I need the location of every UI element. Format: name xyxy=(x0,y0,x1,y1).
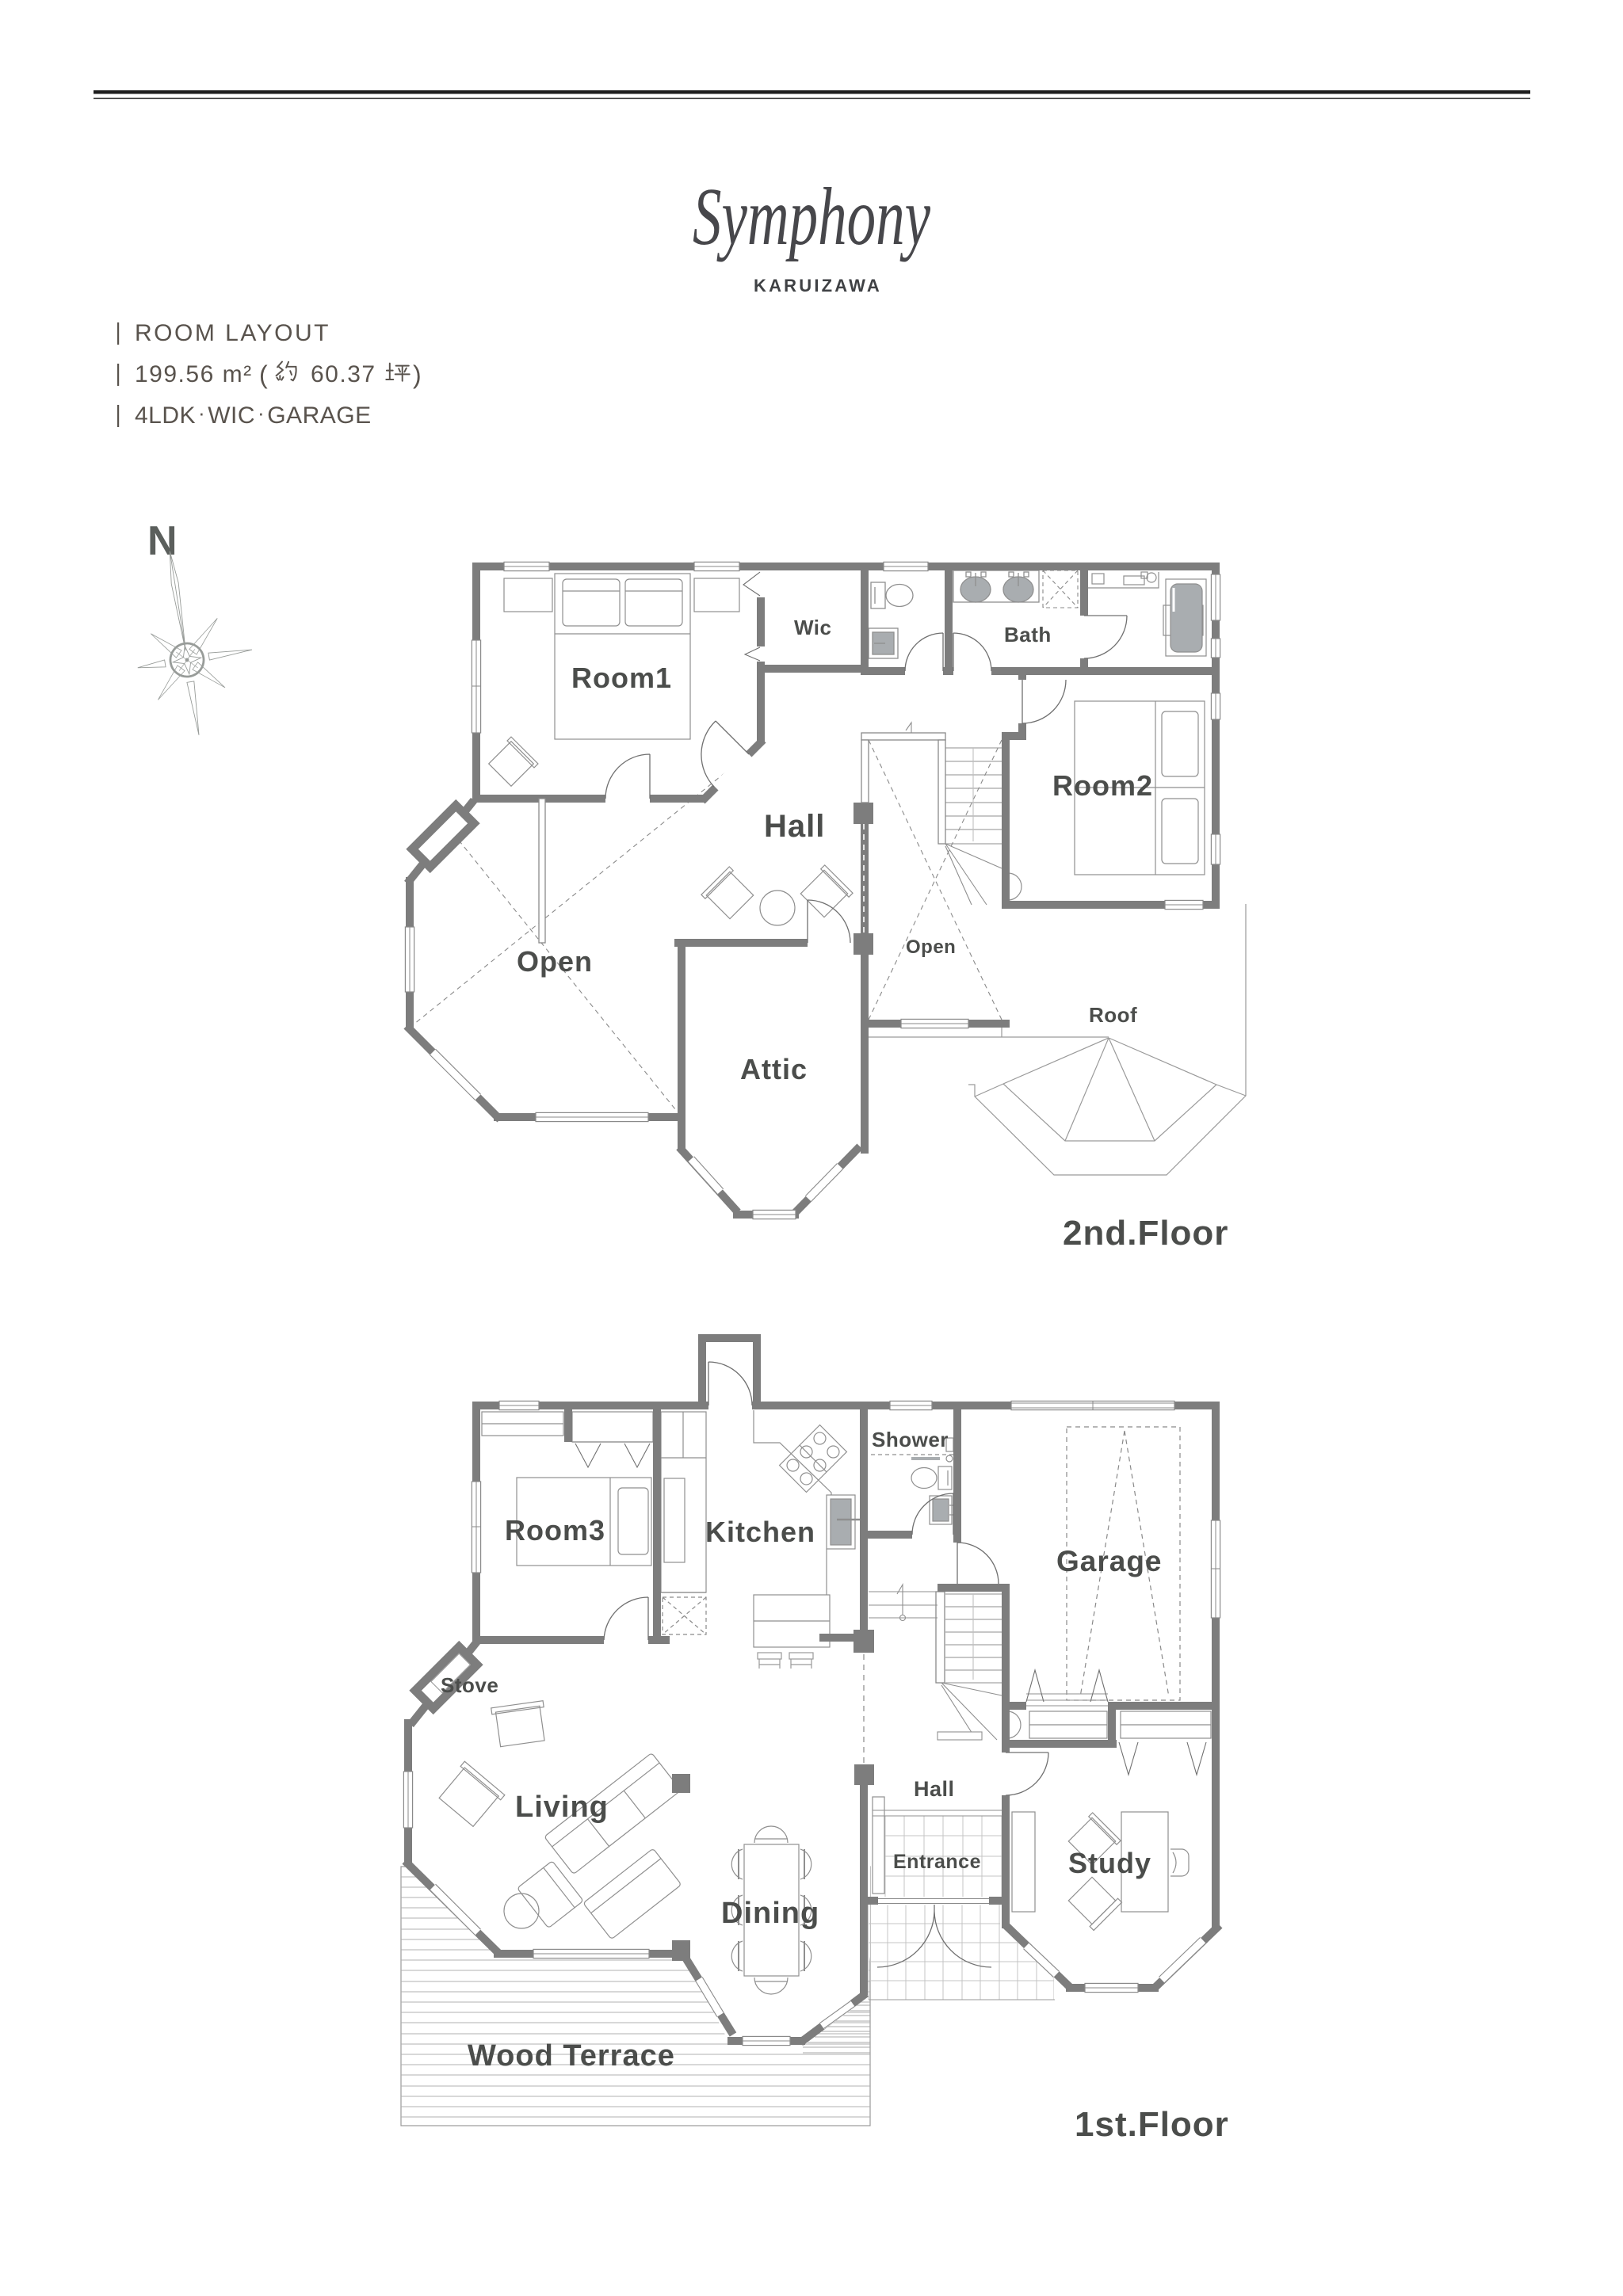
svg-text:Shower: Shower xyxy=(872,1428,949,1451)
svg-text:Bath: Bath xyxy=(1004,623,1052,646)
svg-text:Entrance: Entrance xyxy=(893,1851,981,1873)
svg-text:Living: Living xyxy=(515,1791,609,1824)
svg-text:1st.Floor: 1st.Floor xyxy=(1075,2105,1229,2144)
svg-text:N: N xyxy=(147,518,178,564)
svg-text:KARUIZAWA: KARUIZAWA xyxy=(754,276,882,296)
svg-text:Attic: Attic xyxy=(740,1053,808,1085)
svg-text:Hall: Hall xyxy=(914,1777,955,1801)
svg-text:): ) xyxy=(413,360,422,389)
svg-text:Kitchen: Kitchen xyxy=(705,1516,815,1548)
svg-text:60.37: 60.37 xyxy=(311,361,376,387)
svg-text:Stove: Stove xyxy=(441,1673,498,1697)
svg-text:199.56 m²: 199.56 m² xyxy=(135,361,253,387)
svg-text:Room1: Room1 xyxy=(571,662,672,694)
svg-text:Roof: Roof xyxy=(1089,1003,1137,1027)
svg-text:ROOM LAYOUT: ROOM LAYOUT xyxy=(135,320,330,346)
svg-text:Open: Open xyxy=(517,945,593,978)
svg-text:Symphony: Symphony xyxy=(693,171,931,262)
svg-text:Dining: Dining xyxy=(721,1897,819,1930)
svg-text:Room2: Room2 xyxy=(1052,769,1153,802)
svg-text:Wic: Wic xyxy=(794,616,832,639)
svg-text:Hall: Hall xyxy=(764,809,825,844)
svg-text:Room3: Room3 xyxy=(505,1514,605,1547)
svg-text:(: ( xyxy=(259,360,268,389)
svg-text:2nd.Floor: 2nd.Floor xyxy=(1063,1214,1228,1253)
svg-text:Open: Open xyxy=(906,936,956,958)
svg-text:Study: Study xyxy=(1068,1847,1151,1879)
svg-text:Wood Terrace: Wood Terrace xyxy=(468,2039,675,2073)
svg-text:4LDK·WIC·GARAGE: 4LDK·WIC·GARAGE xyxy=(135,401,372,429)
svg-text:Garage: Garage xyxy=(1056,1545,1163,1577)
